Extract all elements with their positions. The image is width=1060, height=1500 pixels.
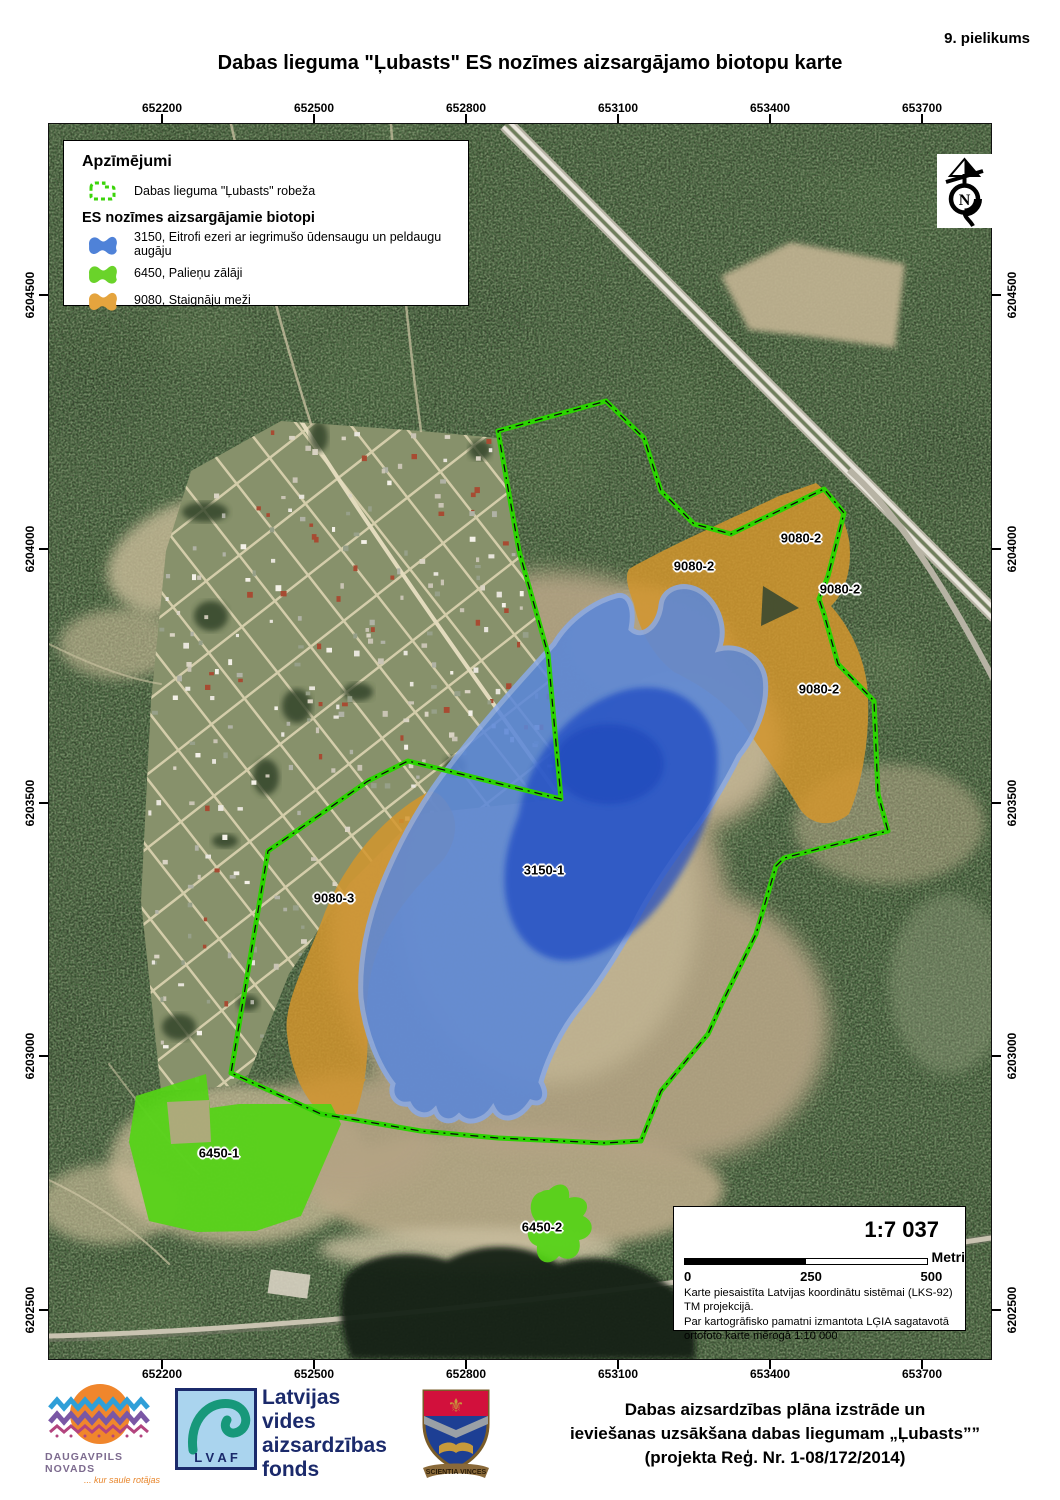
y-axis-tick — [992, 294, 1001, 296]
legend-item: 3150, Eitrofi ezeri ar iegrimušo ūdensau… — [84, 230, 468, 258]
legend-item: 9080, Staignāju meži — [84, 288, 468, 312]
svg-text:L V A F: L V A F — [194, 1450, 238, 1465]
y-axis-tick — [39, 548, 48, 550]
scale-note-1: Karte piesaistīta Latvijas koordinātu si… — [684, 1286, 955, 1315]
biotope-label-6450-1: 6450-1 — [197, 1146, 241, 1161]
x-axis-label: 652800 — [446, 101, 486, 115]
scale-note-2: Par kartogrāfisko pamatni izmantota LĢIA… — [684, 1315, 955, 1344]
y-axis-label: 6203000 — [23, 1033, 37, 1080]
x-axis-tick — [921, 1360, 923, 1369]
x-axis-label: 653400 — [750, 1367, 790, 1381]
y-axis-tick — [39, 294, 48, 296]
y-axis-label: 6202500 — [23, 1287, 37, 1334]
legend-item-label: 3150, Eitrofi ezeri ar iegrimušo ūdensau… — [134, 230, 468, 258]
scale-box: 1:7 037 Metri 0 250 500 Karte piesaistīt… — [673, 1206, 966, 1331]
project-title: Dabas aizsardzības plāna izstrāde unievi… — [520, 1398, 1030, 1470]
x-axis-label: 653700 — [902, 1367, 942, 1381]
scale-bar — [684, 1258, 928, 1265]
scale-unit: Metri — [932, 1249, 965, 1265]
y-axis-tick — [992, 802, 1001, 804]
x-axis-tick — [465, 1360, 467, 1369]
lvaf-name-line: Latvijas — [262, 1386, 387, 1410]
x-axis-label: 653100 — [598, 101, 638, 115]
biotope-swatch-icon — [84, 261, 120, 285]
y-axis-tick — [992, 1055, 1001, 1057]
map-canvas: Apzīmējumi Dabas lieguma "Ļubasts" robež… — [48, 123, 992, 1360]
y-axis-tick — [39, 1309, 48, 1311]
daugavpils-novads-tagline: ... kur saule rotājas — [45, 1475, 160, 1485]
x-axis-label: 653700 — [902, 101, 942, 115]
scale-numbers: 0 250 500 — [684, 1269, 939, 1283]
project-title-line: (projekta Reģ. Nr. 1-08/172/2014) — [520, 1446, 1030, 1470]
biotope-swatch-icon — [84, 232, 120, 256]
y-axis-label: 6203500 — [23, 780, 37, 827]
lvaf-name-line: vides — [262, 1410, 387, 1434]
x-axis-tick — [465, 114, 467, 123]
legend-item-label: 6450, Palieņu zālāji — [134, 266, 242, 280]
y-axis-tick — [39, 802, 48, 804]
biotope-label-9080-2: 9080-2 — [797, 682, 841, 697]
x-axis-tick — [313, 1360, 315, 1369]
y-axis-tick — [992, 1309, 1001, 1311]
lvaf-name-line: aizsardzības — [262, 1434, 387, 1458]
y-axis-label: 6204500 — [23, 272, 37, 319]
x-axis-tick — [921, 114, 923, 123]
legend: Apzīmējumi Dabas lieguma "Ļubasts" robež… — [63, 140, 469, 306]
biotope-swatch-icon — [84, 288, 120, 312]
biotope-label-3150-1: 3150-1 — [522, 863, 566, 878]
x-axis-label: 652500 — [294, 101, 334, 115]
x-axis-label: 653400 — [750, 101, 790, 115]
project-title-line: ieviešanas uzsākšana dabas liegumam „Ļub… — [520, 1422, 1030, 1446]
svg-text:⚜: ⚜ — [447, 1396, 464, 1417]
legend-boundary-label: Dabas lieguma "Ļubasts" robeža — [134, 184, 315, 198]
y-axis-label: 6203500 — [1005, 780, 1019, 827]
daugavpils-novads-name: DAUGAVPILS NOVADS — [45, 1451, 160, 1475]
y-axis-label: 6204000 — [1005, 526, 1019, 573]
lvaf-logo: L V A F — [175, 1388, 257, 1475]
x-axis-label: 652500 — [294, 1367, 334, 1381]
daugavpils-novads-logo: DAUGAVPILS NOVADS ... kur saule rotājas — [45, 1382, 160, 1485]
lvaf-name: Latvijasvidesaizsardzībasfonds — [262, 1386, 387, 1482]
scale-ratio: 1:7 037 — [674, 1207, 965, 1243]
x-axis-tick — [313, 114, 315, 123]
y-axis-tick — [992, 548, 1001, 550]
x-axis-tick — [617, 114, 619, 123]
biotope-label-9080-2: 9080-2 — [779, 531, 823, 546]
x-axis-tick — [161, 1360, 163, 1369]
legend-heading: Apzīmējumi — [82, 153, 468, 171]
biotope-label-6450-2: 6450-2 — [520, 1220, 564, 1235]
biotope-label-9080-2: 9080-2 — [818, 582, 862, 597]
x-axis-tick — [617, 1360, 619, 1369]
y-axis-tick — [39, 1055, 48, 1057]
y-axis-label: 6203000 — [1005, 1033, 1019, 1080]
x-axis-label: 652800 — [446, 1367, 486, 1381]
x-axis-label: 652200 — [142, 1367, 182, 1381]
x-axis-tick — [769, 1360, 771, 1369]
y-axis-label: 6204000 — [23, 526, 37, 573]
svg-text:SCIENTIA VINCES: SCIENTIA VINCES — [426, 1469, 487, 1476]
lvaf-name-line: fonds — [262, 1458, 387, 1482]
boundary-swatch-icon — [84, 179, 120, 203]
y-axis-label: 6202500 — [1005, 1287, 1019, 1334]
university-crest-logo: ⚜ SCIENTIA VINCES — [415, 1386, 497, 1487]
project-title-line: Dabas aizsardzības plāna izstrāde un — [520, 1398, 1030, 1422]
page: 9. pielikums Dabas lieguma "Ļubasts" ES … — [0, 0, 1060, 1500]
biotope-label-9080-3: 9080-3 — [312, 891, 356, 906]
y-axis-label: 6204500 — [1005, 272, 1019, 319]
x-axis-label: 653100 — [598, 1367, 638, 1381]
legend-subheading: ES nozīmes aizsargājamie biotopi — [82, 210, 468, 226]
legend-item: 6450, Palieņu zālāji — [84, 261, 468, 285]
x-axis-tick — [769, 114, 771, 123]
x-axis-tick — [161, 114, 163, 123]
x-axis-label: 652200 — [142, 101, 182, 115]
svg-text:N: N — [959, 192, 971, 209]
legend-item-label: 9080, Staignāju meži — [134, 293, 251, 307]
appendix-label: 9. pielikums — [944, 30, 1030, 47]
biotope-label-9080-2: 9080-2 — [672, 559, 716, 574]
north-arrow-icon: N — [937, 154, 992, 228]
page-title: Dabas lieguma "Ļubasts" ES nozīmes aizsa… — [0, 52, 1060, 75]
legend-boundary-row: Dabas lieguma "Ļubasts" robeža — [84, 179, 468, 203]
